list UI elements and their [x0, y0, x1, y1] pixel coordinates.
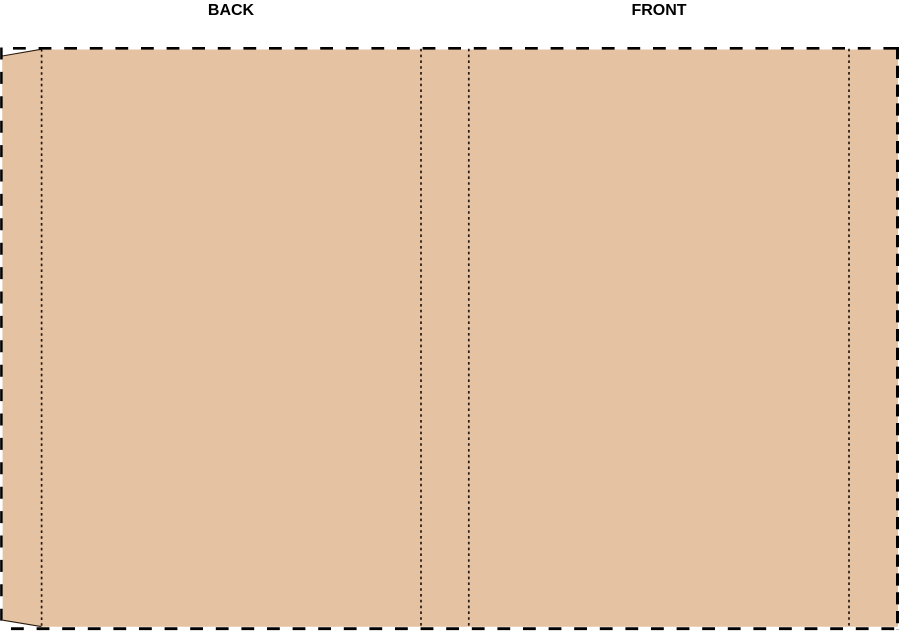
svg-text:FRONT: FRONT	[631, 2, 686, 19]
svg-text:BACK: BACK	[208, 2, 255, 19]
